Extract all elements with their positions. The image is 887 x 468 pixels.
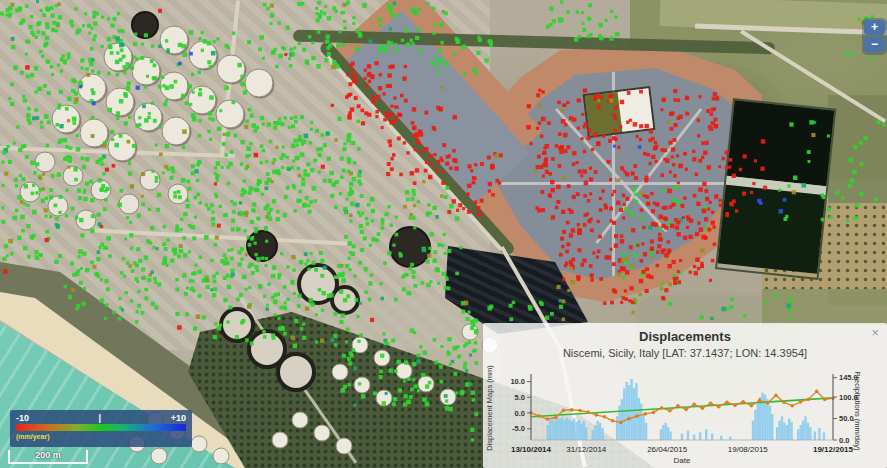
svg-text:5.0: 5.0 bbox=[515, 393, 525, 402]
legend-max-label: +10 bbox=[171, 413, 186, 423]
svg-text:0.0: 0.0 bbox=[839, 436, 849, 445]
svg-text:19/08/2015: 19/08/2015 bbox=[728, 445, 769, 454]
displacement-popup: Displacements Niscemi, Sicily, Italy [LA… bbox=[483, 323, 887, 468]
zoom-out-button[interactable]: − bbox=[864, 37, 885, 52]
svg-text:26/04/2015: 26/04/2015 bbox=[647, 445, 688, 454]
zoom-control: + − bbox=[862, 18, 887, 55]
svg-text:50.0: 50.0 bbox=[839, 414, 854, 423]
displacement-chart[interactable]: 10.05.00.0-5.0145.0100.050.00.013/10/201… bbox=[483, 323, 887, 468]
svg-text:Displacement Maps (mm): Displacement Maps (mm) bbox=[485, 365, 494, 451]
svg-text:Date: Date bbox=[674, 456, 691, 465]
zoom-in-button[interactable]: + bbox=[864, 20, 885, 35]
svg-text:0.0: 0.0 bbox=[515, 409, 525, 418]
svg-text:31/12/2014: 31/12/2014 bbox=[566, 445, 607, 454]
legend-min-label: -10 bbox=[16, 413, 29, 423]
svg-text:10.0: 10.0 bbox=[510, 377, 525, 386]
legend-mid-tick: | bbox=[99, 413, 102, 423]
svg-text:Precipitations (mm/day): Precipitations (mm/day) bbox=[853, 372, 862, 451]
map-scale-bar: 200 m bbox=[8, 450, 88, 464]
svg-text:13/10/2014: 13/10/2014 bbox=[511, 445, 552, 454]
color-scale-legend: -10 | +10 (mm/year) bbox=[10, 410, 192, 447]
legend-gradient-bar bbox=[16, 424, 186, 431]
map-viewport[interactable]: -10 | +10 (mm/year) 200 m + − Displaceme… bbox=[0, 0, 887, 468]
legend-units-label: (mm/year) bbox=[16, 433, 186, 440]
svg-text:19/12/2015: 19/12/2015 bbox=[813, 445, 854, 454]
svg-text:-5.0: -5.0 bbox=[512, 424, 525, 433]
scale-bar-label: 200 m bbox=[35, 450, 61, 460]
